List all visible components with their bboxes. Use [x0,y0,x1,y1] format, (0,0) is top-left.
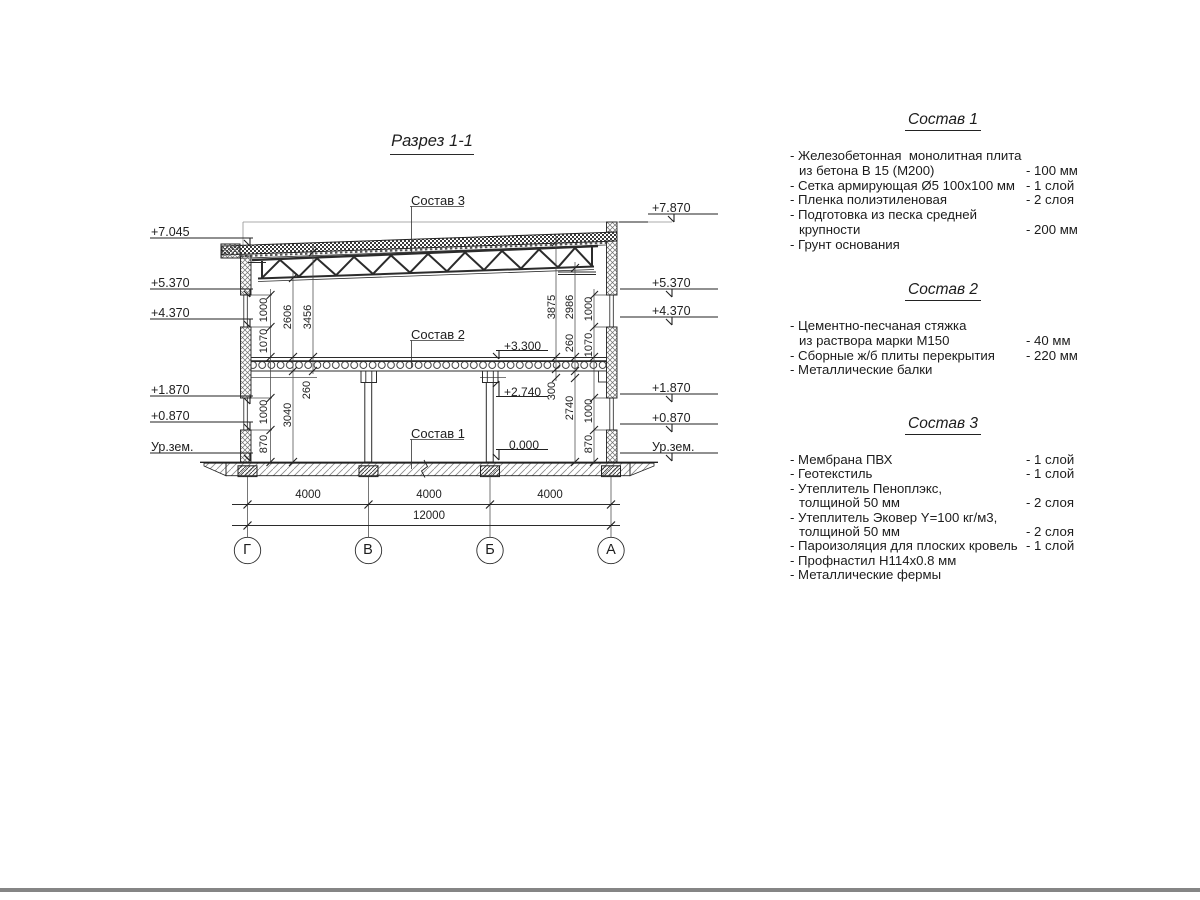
callout-sostav-1: Состав 1 [411,426,465,441]
axis-label-g: Г [232,542,262,558]
list-item: - Геотекстиль- 1 слой [790,467,1096,481]
dim-label: 870 [258,421,270,467]
list-item: - Железобетонная монолитная плита [790,149,1096,164]
dim-label-span-2: 4000 [404,489,454,501]
dim-label: 260 [301,367,313,413]
list-item: - Пленка полиэтиленовая- 2 слоя [790,193,1096,208]
dim-label: 3040 [282,392,294,438]
list-item: из бетона В 15 (М200)- 100 мм [790,164,1096,179]
list-item: крупности- 200 мм [790,223,1096,238]
dim-label-total: 12000 [404,510,454,522]
list-item: толщиной 50 мм- 2 слоя [790,525,1096,539]
level-label-left-7045: +7.045 [151,225,190,239]
level-label-right-4370: +4.370 [652,304,691,318]
dim-label-span-1: 4000 [283,489,333,501]
level-label-left-1870: +1.870 [151,383,190,397]
list-item: - Металлические фермы [790,568,1096,582]
drawing-title: Разрез 1-1 [390,132,474,155]
list-item: - Подготовка из песка средней [790,208,1096,223]
level-label-right-7870: +7.870 [652,201,691,215]
composition-list-1: Состав 1 - Железобетонная монолитная пли… [790,111,1096,253]
columns [365,383,493,463]
level-label-3300: +3.300 [504,339,541,353]
list-title: Состав 1 [790,111,1096,129]
level-label-left-4370: +4.370 [151,306,190,320]
dim-label: 1070 [258,318,270,364]
list-item: - Цементно-песчаная стяжка [790,319,1096,334]
level-label-0000: 0.000 [509,438,539,452]
composition-list-3: Состав 3 - Мембрана ПВХ- 1 слой - Геотек… [790,415,1096,583]
level-label-right-0870: +0.870 [652,411,691,425]
axis-label-b: Б [475,542,505,558]
list-item: - Мембрана ПВХ- 1 слой [790,453,1096,467]
dim-label: 1070 [583,322,595,368]
dim-label: 870 [583,421,595,467]
callout-sostav-3: Состав 3 [411,193,465,208]
window-bottom-edge [0,888,1200,892]
dim-label-span-3: 4000 [525,489,575,501]
dim-label: 260 [564,320,576,366]
level-label-left-ground: Ур.зем. [151,440,193,454]
list-item: из раствора марки М150- 40 мм [790,334,1096,349]
list-item: - Металлические балки [790,363,1096,378]
callout-sostav-2: Состав 2 [411,327,465,342]
level-label-right-1870: +1.870 [652,381,691,395]
dim-label: 2606 [282,294,294,340]
list-item: - Сетка армирующая Ø5 100х100 мм- 1 слой [790,179,1096,194]
composition-list-2: Состав 2 - Цементно-песчаная стяжка из р… [790,281,1096,378]
dim-label: 3875 [546,284,558,330]
list-item: - Грунт основания [790,238,1096,253]
dim-label: 3456 [302,294,314,340]
dim-label: 2740 [564,385,576,431]
dim-label: 300 [546,368,558,414]
list-item: - Сборные ж/б плиты перекрытия- 220 мм [790,349,1096,364]
list-item: - Утеплитель Эковер Y=100 кг/м3, [790,511,1096,525]
level-label-right-5370: +5.370 [652,276,691,290]
list-item: толщиной 50 мм- 2 слоя [790,496,1096,510]
axis-label-a: А [596,542,626,558]
list-title: Состав 3 [790,415,1096,433]
list-item: - Утеплитель Пеноплэкс, [790,482,1096,496]
list-item: - Пароизоляция для плоских кровель- 1 сл… [790,539,1096,553]
level-label-left-5370: +5.370 [151,276,190,290]
level-label-2740: +2.740 [504,385,541,399]
axis-label-v: В [353,542,383,558]
level-label-left-0870: +0.870 [151,409,190,423]
drawing-sheet: Разрез 1-1 +7.045 +5.370 +4.370 +1.870 +… [0,0,1200,900]
level-label-right-ground: Ур.зем. [652,440,694,454]
list-title: Состав 2 [790,281,1096,299]
list-item: - Профнастил Н114х0.8 мм [790,554,1096,568]
